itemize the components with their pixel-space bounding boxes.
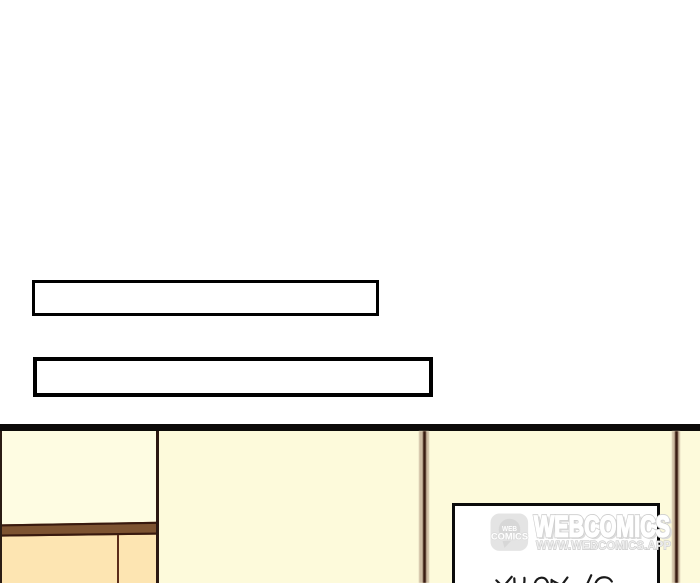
svg-text:COMICS: COMICS — [491, 532, 528, 542]
svg-text:WWW.WEBCOMICS.APP: WWW.WEBCOMICS.APP — [536, 539, 671, 553]
